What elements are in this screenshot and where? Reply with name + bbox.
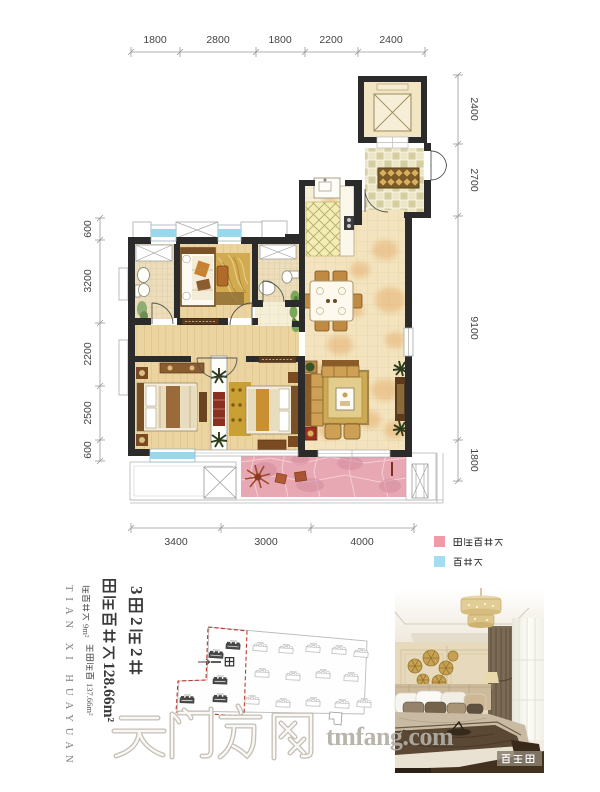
svg-text:1800: 1800 xyxy=(468,448,480,472)
svg-text:2: 2 xyxy=(127,617,146,626)
svg-text:3000: 3000 xyxy=(254,536,278,548)
svg-text:1800: 1800 xyxy=(143,34,167,46)
svg-text:4000: 4000 xyxy=(350,536,374,548)
svg-text:128.66m²: 128.66m² xyxy=(100,662,117,723)
svg-text:9100: 9100 xyxy=(468,316,480,340)
svg-text:2700: 2700 xyxy=(468,168,480,192)
svg-text:137.66m²: 137.66m² xyxy=(85,683,95,716)
svg-text:2400: 2400 xyxy=(379,34,403,46)
svg-text:1800: 1800 xyxy=(268,34,292,46)
svg-text:600: 600 xyxy=(82,220,94,238)
svg-text:3200: 3200 xyxy=(82,269,94,293)
svg-text:9m²: 9m² xyxy=(81,624,91,638)
svg-text:2400: 2400 xyxy=(468,97,480,121)
svg-text:tmfang.com: tmfang.com xyxy=(326,722,454,751)
svg-text:2500: 2500 xyxy=(82,401,94,425)
svg-text:3: 3 xyxy=(127,586,146,595)
svg-text:2800: 2800 xyxy=(206,34,230,46)
svg-text:2200: 2200 xyxy=(82,342,94,366)
svg-text:3400: 3400 xyxy=(164,536,188,548)
svg-text:600: 600 xyxy=(82,441,94,459)
svg-text:2: 2 xyxy=(127,648,146,657)
svg-text:2200: 2200 xyxy=(319,34,343,46)
svg-text:TIAN XI HUAYUAN: TIAN XI HUAYUAN xyxy=(63,585,74,769)
